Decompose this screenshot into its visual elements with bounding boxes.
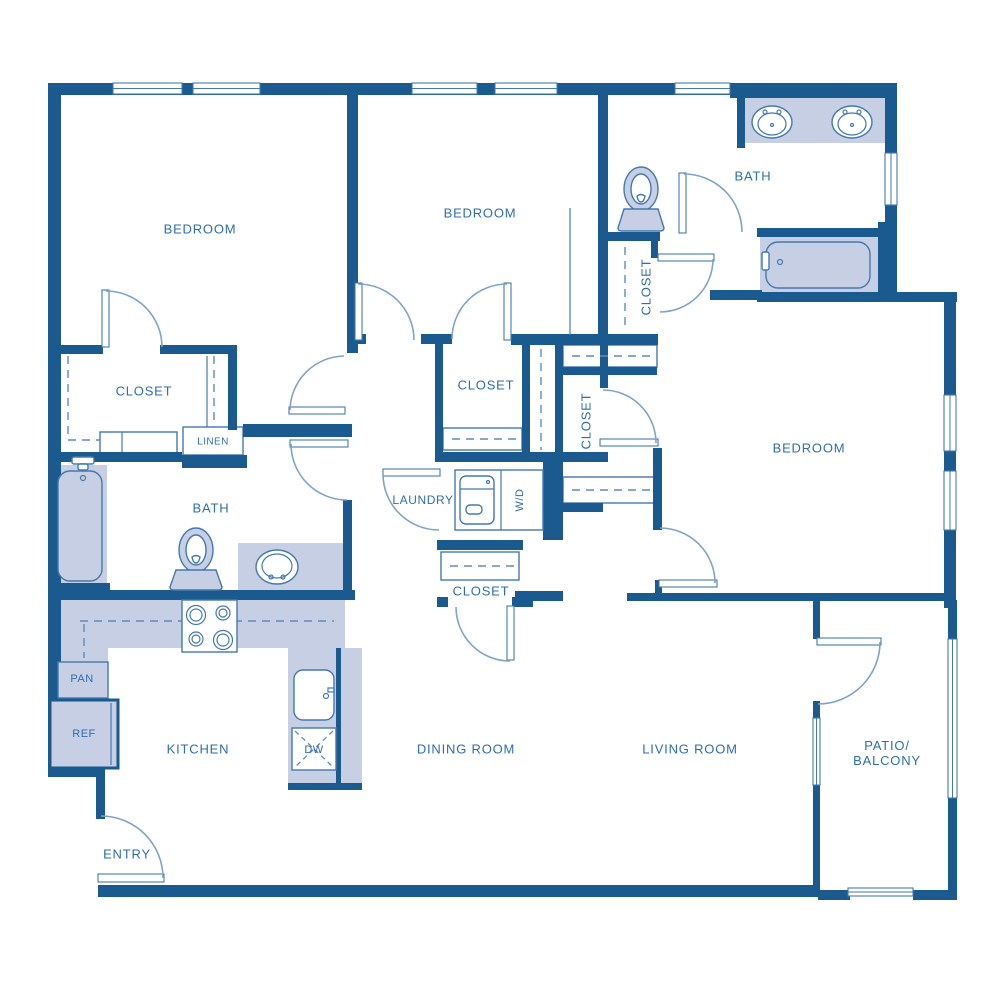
door-icon bbox=[817, 638, 881, 704]
room-label-living-room: LIVING ROOM bbox=[642, 742, 737, 757]
window-icon bbox=[675, 83, 730, 94]
room-label-bedroom-top-middle: BEDROOM bbox=[444, 206, 517, 221]
stove-icon bbox=[182, 600, 237, 652]
sink-icon bbox=[832, 106, 872, 138]
room-label-kitchen: KITCHEN bbox=[167, 742, 230, 757]
patio-label-line2: BALCONY bbox=[853, 753, 921, 768]
window-icon bbox=[885, 153, 897, 205]
door-icon bbox=[456, 606, 514, 661]
window-icon bbox=[495, 83, 557, 94]
bathtub-icon bbox=[58, 457, 102, 581]
patio-label-line1: PATIO/ bbox=[853, 738, 921, 753]
appliance-label-pantry: PAN bbox=[70, 673, 93, 685]
door-icon bbox=[679, 173, 742, 233]
door-icon bbox=[290, 440, 348, 500]
sink-icon bbox=[752, 106, 792, 138]
room-label-bath-top: BATH bbox=[735, 169, 772, 184]
room-label-closet-middle: CLOSET bbox=[458, 378, 515, 393]
room-label-bath-left: BATH bbox=[193, 501, 230, 516]
washer-dryer-icon bbox=[455, 470, 543, 530]
shelf-left-closet bbox=[100, 432, 177, 454]
room-label-entry: ENTRY bbox=[103, 847, 151, 862]
window-icon bbox=[813, 718, 820, 785]
kitchen-sink-icon bbox=[294, 670, 334, 720]
window-icon bbox=[412, 83, 477, 94]
appliance-label-refrigerator: REF bbox=[72, 728, 96, 740]
appliance-label-dishwasher: DW bbox=[304, 744, 323, 756]
door-icon bbox=[658, 254, 714, 312]
window-icon bbox=[193, 83, 260, 94]
room-label-closet-toilet: CLOSET bbox=[639, 259, 654, 316]
door-icon bbox=[289, 356, 345, 414]
room-label-closet-hall: CLOSET bbox=[579, 393, 594, 450]
bathtub-icon bbox=[762, 242, 870, 288]
room-label-linen: LINEN bbox=[197, 437, 228, 448]
room-label-closet-top-left: CLOSET bbox=[116, 384, 173, 399]
window-icon bbox=[944, 471, 956, 530]
sink-icon bbox=[256, 550, 298, 584]
door-icon bbox=[102, 290, 162, 347]
door-icon bbox=[452, 283, 511, 340]
room-label-closet-dining: CLOSET bbox=[453, 584, 510, 599]
door-icon bbox=[355, 283, 414, 340]
floor-plan: BEDROOM BEDROOM BEDROOM BATH BATH CLOSET… bbox=[0, 0, 1000, 1000]
door-icon bbox=[659, 528, 717, 587]
room-label-bedroom-right: BEDROOM bbox=[773, 441, 846, 456]
window-icon bbox=[944, 395, 956, 451]
window-icon bbox=[113, 83, 182, 94]
toilet-icon bbox=[618, 167, 664, 231]
window-icon bbox=[948, 639, 957, 798]
toilet-icon bbox=[170, 528, 222, 590]
room-label-bedroom-top-left: BEDROOM bbox=[164, 222, 237, 237]
door-icon bbox=[600, 390, 658, 446]
room-label-dining-room: DINING ROOM bbox=[417, 742, 515, 757]
window-icon bbox=[848, 888, 913, 896]
room-label-patio-balcony: PATIO/ BALCONY bbox=[853, 738, 921, 768]
room-label-laundry: LAUNDRY bbox=[392, 493, 453, 507]
appliance-label-washer-dryer: W/D bbox=[514, 489, 526, 512]
